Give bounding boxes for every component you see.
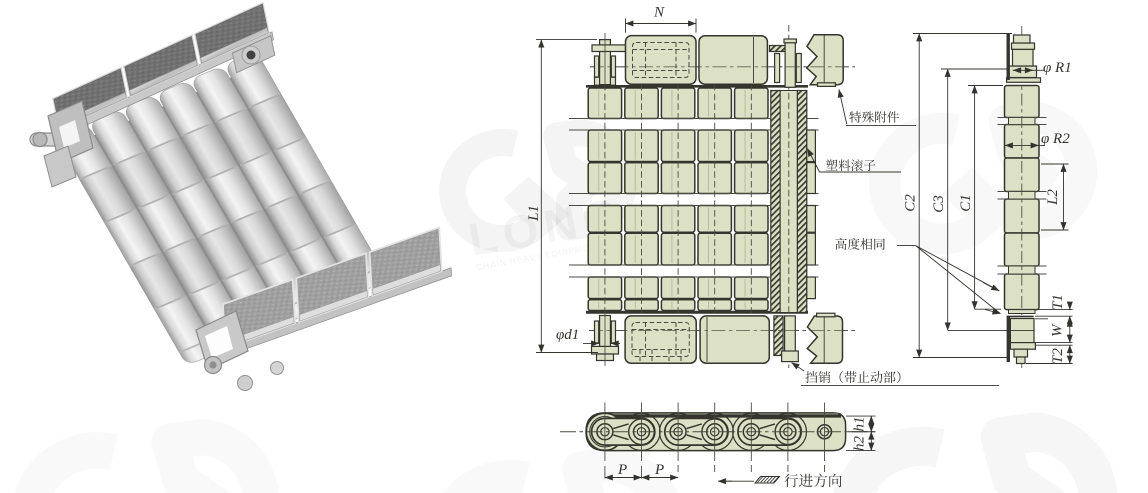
svg-text:L2: L2 <box>1045 189 1061 206</box>
svg-text:T1: T1 <box>1050 294 1066 310</box>
svg-text:N: N <box>653 5 665 21</box>
svg-text:T2: T2 <box>1050 348 1066 364</box>
svg-text:h1: h1 <box>852 417 868 432</box>
svg-text:C2: C2 <box>903 194 919 212</box>
svg-text:φd1: φd1 <box>556 327 579 343</box>
svg-text:P: P <box>617 462 627 478</box>
svg-text:C1: C1 <box>958 194 974 212</box>
svg-text:L1: L1 <box>526 205 542 222</box>
svg-text:P: P <box>654 462 664 478</box>
svg-text:φ R1: φ R1 <box>1043 60 1072 76</box>
svg-text:h2: h2 <box>852 436 868 452</box>
svg-text:W: W <box>1050 323 1066 337</box>
svg-text:φ R2: φ R2 <box>1041 131 1070 147</box>
svg-text:C3: C3 <box>931 195 947 213</box>
